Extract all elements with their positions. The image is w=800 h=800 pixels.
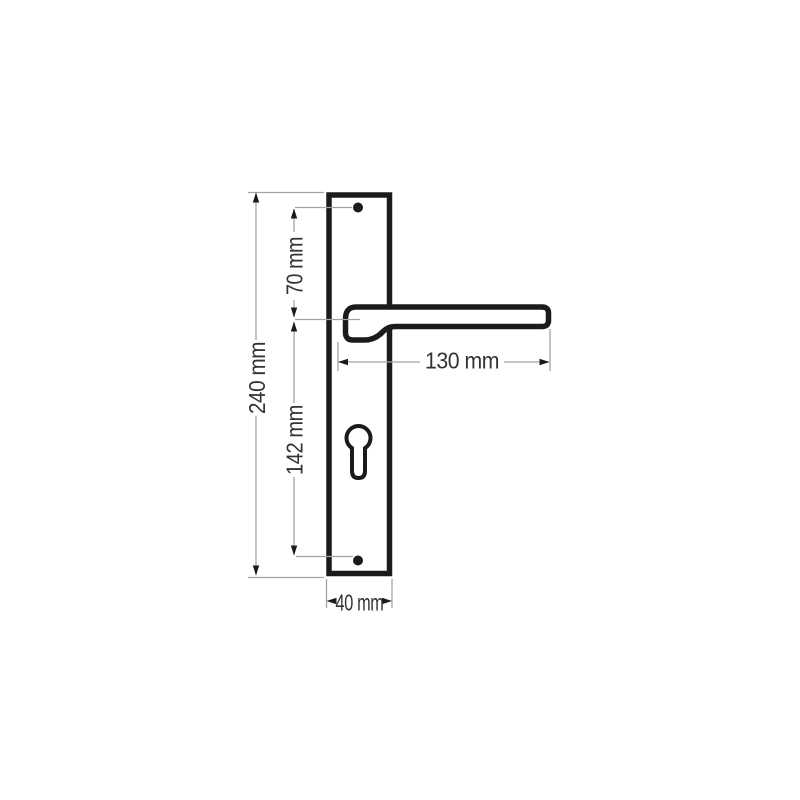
arrowhead-up-icon (253, 193, 259, 203)
dimension-label-130mm: 130 mm (425, 348, 499, 374)
technical-drawing-page: 240 mm 70 mm 142 mm (0, 0, 800, 800)
arrowhead-up-icon (291, 322, 297, 332)
arrowhead-down-icon (291, 546, 297, 556)
arrowhead-up-icon (291, 209, 297, 219)
dimension-label-142mm: 142 mm (282, 405, 308, 475)
arrowhead-right-icon (540, 359, 550, 365)
door-handle-drawing: 240 mm 70 mm 142 mm (0, 0, 800, 800)
dimension-label-70mm: 70 mm (282, 237, 308, 295)
euro-cylinder-keyhole (347, 426, 371, 478)
dimension-plate-width: 40 mm (327, 579, 393, 616)
arrowhead-right-icon (382, 598, 392, 604)
dimension-label-overall-height: 240 mm (244, 342, 270, 414)
arrowhead-down-icon (253, 566, 259, 576)
backplate (329, 195, 390, 574)
screw-hole-top (353, 203, 363, 213)
lever-handle (346, 307, 549, 340)
arrowhead-down-icon (291, 308, 297, 318)
dimension-label-40mm: 40 mm (336, 590, 384, 616)
screw-hole-bottom (353, 556, 363, 566)
product-outline (329, 195, 549, 574)
